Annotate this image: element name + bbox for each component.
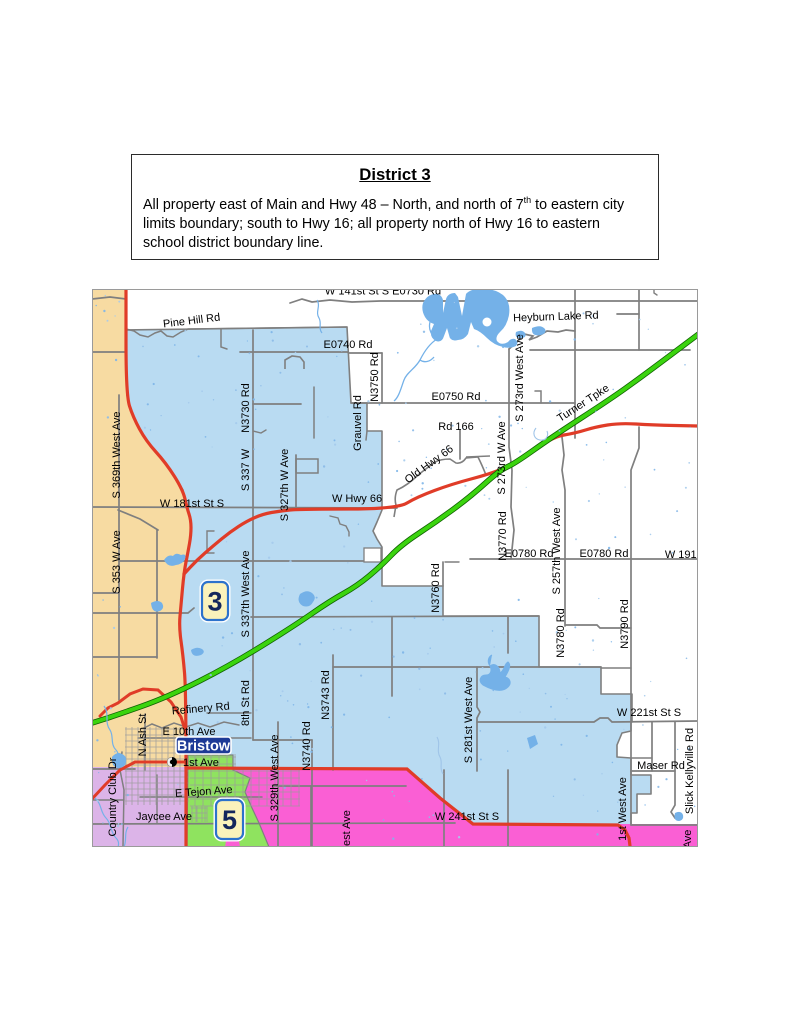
- svg-text:N3743 Rd: N3743 Rd: [320, 670, 332, 720]
- svg-text:N3730 Rd: N3730 Rd: [240, 383, 252, 433]
- svg-text:5: 5: [222, 805, 237, 835]
- svg-text:E0750 Rd: E0750 Rd: [432, 391, 481, 403]
- svg-text:E0740 Rd: E0740 Rd: [324, 339, 373, 351]
- svg-text:S 281st West Ave: S 281st West Ave: [463, 677, 475, 763]
- svg-text:W 221st St S: W 221st St S: [617, 707, 681, 719]
- svg-text:S 337 W: S 337 W: [240, 448, 252, 491]
- svg-text:Jaycee Ave: Jaycee Ave: [136, 811, 192, 823]
- svg-text:N3760 Rd: N3760 Rd: [430, 563, 442, 613]
- svg-text:W 181st St S: W 181st St S: [160, 498, 224, 510]
- svg-text:W 141st St S E0730 Rd: W 141st St S E0730 Rd: [325, 289, 441, 298]
- svg-text:S 273rd W Ave: S 273rd W Ave: [496, 421, 508, 494]
- svg-text:Bristow: Bristow: [177, 739, 231, 755]
- svg-text:Country Club Dr: Country Club Dr: [107, 757, 119, 836]
- svg-text:Ave: Ave: [682, 830, 694, 847]
- svg-text:N3780 Rd: N3780 Rd: [555, 608, 567, 658]
- svg-text:8th St Rd: 8th St Rd: [240, 680, 252, 726]
- svg-text:1st Ave: 1st Ave: [183, 757, 219, 769]
- svg-text:W Hwy 66: W Hwy 66: [332, 493, 382, 505]
- svg-text:3: 3: [207, 587, 222, 617]
- svg-text:Rd 166: Rd 166: [438, 421, 473, 433]
- svg-text:Maser Rd: Maser Rd: [637, 760, 685, 772]
- svg-text:Slick Kellyville Rd: Slick Kellyville Rd: [684, 728, 696, 814]
- svg-text:Grauvel Rd: Grauvel Rd: [352, 395, 364, 451]
- svg-text:N3770 Rd: N3770 Rd: [497, 511, 509, 561]
- svg-text:E0780 Rd: E0780 Rd: [505, 548, 554, 560]
- svg-text:W 191st: W 191st: [665, 549, 698, 561]
- svg-text:S 337th West Ave: S 337th West Ave: [240, 550, 252, 637]
- svg-text:S 369th West Ave: S 369th West Ave: [111, 411, 123, 498]
- svg-text:S 327th W Ave: S 327th W Ave: [279, 449, 291, 522]
- svg-text:N3750 Rd: N3750 Rd: [369, 352, 381, 402]
- svg-text:E0780 Rd: E0780 Rd: [580, 548, 629, 560]
- svg-text:N Ash St: N Ash St: [137, 714, 149, 757]
- svg-text:S 329th West Ave: S 329th West Ave: [269, 734, 281, 821]
- svg-text:W 241st St S: W 241st St S: [435, 811, 499, 823]
- svg-text:N3790 Rd: N3790 Rd: [619, 599, 631, 649]
- svg-text:est Ave: est Ave: [341, 810, 353, 846]
- svg-text:S 257th West Ave: S 257th West Ave: [551, 507, 563, 594]
- svg-text:S 353 W Ave: S 353 W Ave: [111, 530, 123, 593]
- svg-text:S 273rd West Ave: S 273rd West Ave: [514, 334, 526, 422]
- svg-text:N3740 Rd: N3740 Rd: [301, 721, 313, 771]
- svg-text:1st West Ave: 1st West Ave: [617, 777, 629, 841]
